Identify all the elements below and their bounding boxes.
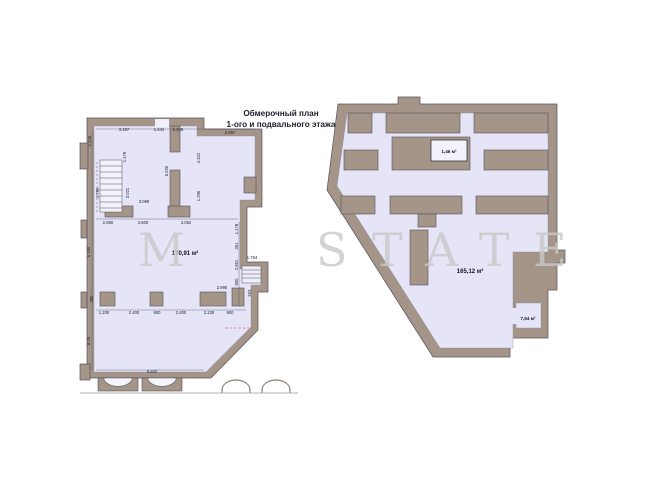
first-floor-plan: 3.487 1.441 1.348 2.997 3.099 2.960 2.60…	[80, 118, 298, 393]
interior-wall	[168, 206, 190, 217]
room-146-label: 1,46 м²	[441, 149, 457, 154]
watermark-letter: S	[316, 223, 348, 277]
interior-wall	[484, 150, 548, 170]
dim-label: 900	[154, 310, 162, 315]
dim-label: 6.502	[147, 369, 158, 374]
wall-opening	[509, 308, 518, 324]
pier	[150, 292, 163, 306]
dim-label: 6.150	[86, 246, 91, 257]
wall-opening	[155, 119, 169, 127]
staircase-main	[97, 160, 122, 212]
dim-label: 280	[89, 295, 94, 303]
dim-label: 4.322	[196, 152, 201, 163]
interior-wall	[348, 113, 372, 133]
pilaster	[80, 364, 90, 380]
pier	[100, 292, 115, 306]
dim-label: 2.400	[129, 310, 140, 315]
dim-label: 3.099	[139, 199, 150, 204]
dim-label: 3.487	[119, 127, 130, 132]
dim-label: 1.296	[196, 190, 201, 201]
dim-label: 1.178	[234, 223, 239, 234]
dim-label: 2.861	[234, 259, 239, 270]
plan-title: Обмерочный план 1-ого и подвального этаж…	[227, 108, 336, 129]
interior-wall	[344, 150, 378, 170]
dim-label: 3.021	[125, 187, 130, 198]
arch-fragment	[222, 380, 250, 393]
dim-label: 900	[234, 278, 239, 286]
staircase-side	[242, 266, 261, 283]
watermark-letter: M	[138, 223, 185, 277]
dim-label: 1.245	[87, 135, 92, 146]
arcade	[80, 378, 298, 393]
floor-plan-page: 3.487 1.441 1.348 2.997 3.099 2.960 2.60…	[0, 0, 653, 489]
room-754-label: 7,54 м²	[520, 316, 536, 321]
dim-label: 8.26	[86, 336, 91, 345]
watermark-letter: A	[424, 223, 459, 277]
watermark-letter: T	[372, 223, 403, 277]
floor-plan-canvas: 3.487 1.441 1.348 2.997 3.099 2.960 2.60…	[0, 0, 653, 489]
dim-label: 2.230	[204, 310, 215, 315]
pilaster	[81, 220, 87, 238]
dim-label: 2.997	[225, 130, 236, 135]
pier	[200, 292, 226, 306]
dim-label: 553	[247, 289, 252, 297]
dim-label: 2.995	[217, 285, 228, 290]
dim-label: 1.441	[154, 127, 165, 132]
dim-label: 361	[234, 242, 239, 250]
watermark-letter: E	[533, 223, 567, 277]
interior-wall	[390, 196, 462, 214]
dim-label: 1.754	[247, 255, 258, 260]
interior-wall	[474, 113, 548, 133]
interior-wall	[341, 196, 375, 214]
interior-wall	[386, 113, 460, 133]
watermark-letter: T	[479, 223, 510, 277]
dim-label: 4.785	[95, 187, 100, 198]
dim-label: 1.200	[99, 310, 110, 315]
dim-label: 2.960	[103, 220, 114, 225]
arch-fragment	[262, 380, 290, 393]
interior-wall	[476, 196, 548, 214]
dim-label: 1.348	[173, 127, 184, 132]
pilaster	[81, 292, 87, 308]
pier	[232, 288, 244, 306]
dim-label: 6.026	[164, 165, 169, 176]
dim-label: 2.400	[176, 310, 187, 315]
interior-wall	[244, 177, 256, 193]
title-line-2: 1-ого и подвального этажа	[227, 120, 336, 129]
title-line-1: Обмерочный план	[243, 108, 318, 118]
dim-label: 900	[227, 310, 235, 315]
interior-wall	[170, 170, 180, 207]
dim-label: 1.479	[122, 151, 127, 162]
